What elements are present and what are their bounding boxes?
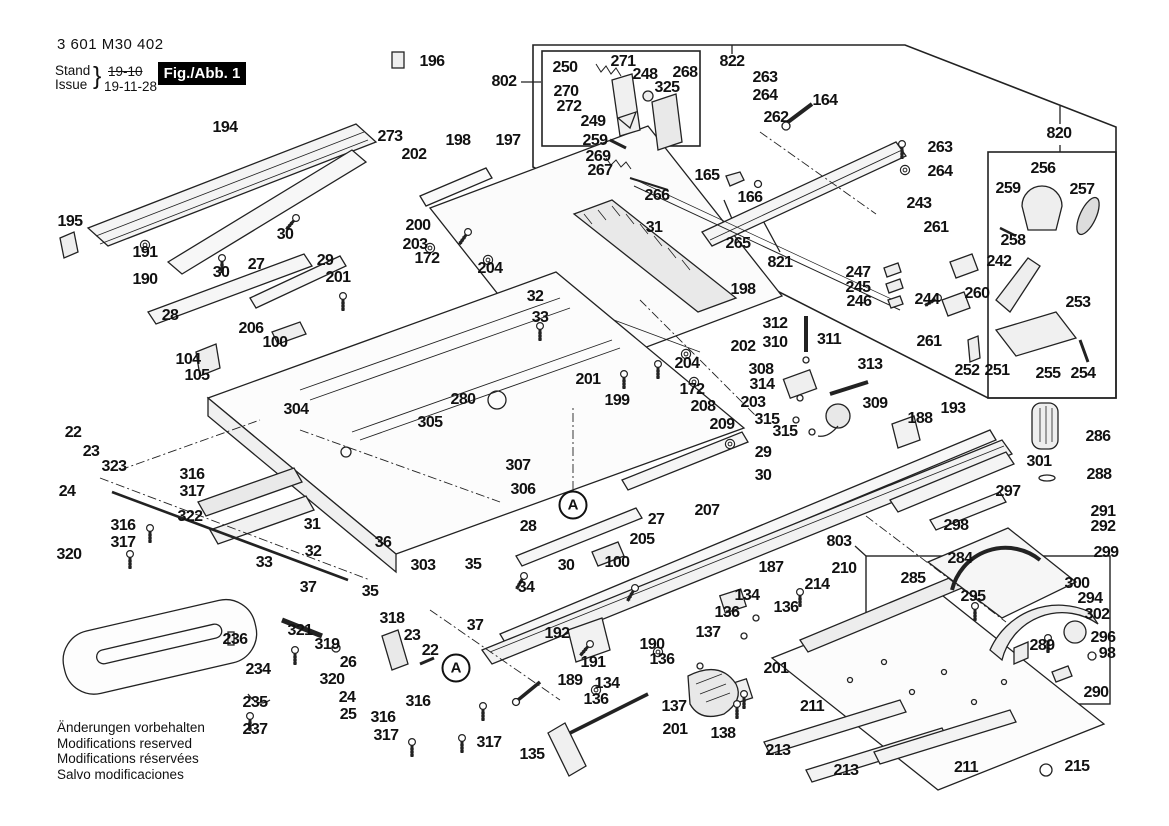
part-label-198: 198 xyxy=(731,282,756,298)
part-label-255: 255 xyxy=(1036,366,1061,382)
part-label-265: 265 xyxy=(726,236,751,252)
part-label-822: 822 xyxy=(720,54,745,70)
part-label-202: 202 xyxy=(402,147,427,163)
part-label-202: 202 xyxy=(731,339,756,355)
part-label-802: 802 xyxy=(492,74,517,90)
exploded-parts-diagram: 3 601 M30 402 Stand Issue } 19-10 19-11-… xyxy=(0,0,1169,826)
part-label-29: 29 xyxy=(755,445,772,461)
part-label-203: 203 xyxy=(741,395,766,411)
part-label-23: 23 xyxy=(83,444,100,460)
part-label-197: 197 xyxy=(496,133,521,149)
part-label-105: 105 xyxy=(185,368,210,384)
part-label-100: 100 xyxy=(263,335,288,351)
part-label-136: 136 xyxy=(650,652,675,668)
part-label-187: 187 xyxy=(759,560,784,576)
part-label-33: 33 xyxy=(532,310,549,326)
part-label-35: 35 xyxy=(465,557,482,573)
part-label-135: 135 xyxy=(520,747,545,763)
part-label-210: 210 xyxy=(832,561,857,577)
part-label-264: 264 xyxy=(753,88,778,104)
part-label-188: 188 xyxy=(908,411,933,427)
part-label-316: 316 xyxy=(406,694,431,710)
part-label-263: 263 xyxy=(928,140,953,156)
part-label-272: 272 xyxy=(557,99,582,115)
part-label-314: 314 xyxy=(750,377,775,393)
part-label-211: 211 xyxy=(954,760,978,776)
part-label-257: 257 xyxy=(1070,182,1095,198)
part-label-263: 263 xyxy=(753,70,778,86)
part-label-30: 30 xyxy=(755,468,772,484)
part-label-309: 309 xyxy=(863,396,888,412)
part-label-317: 317 xyxy=(180,484,205,500)
part-label-317: 317 xyxy=(111,535,136,551)
part-label-209: 209 xyxy=(710,417,735,433)
figure-label-badge: Fig./Abb. 1 xyxy=(158,62,246,85)
part-label-318: 318 xyxy=(380,611,405,627)
part-label-289: 289 xyxy=(1030,638,1055,654)
part-label-307: 307 xyxy=(506,458,531,474)
part-label-104: 104 xyxy=(176,352,201,368)
part-label-266: 266 xyxy=(645,188,670,204)
part-label-317: 317 xyxy=(477,735,502,751)
part-label-30: 30 xyxy=(277,227,294,243)
part-label-284: 284 xyxy=(948,551,973,567)
part-label-298: 298 xyxy=(944,518,969,534)
view-callout-a: A xyxy=(559,491,588,520)
part-label-244: 244 xyxy=(915,292,940,308)
part-label-321: 321 xyxy=(288,623,313,639)
part-label-260: 260 xyxy=(965,286,990,302)
part-label-36: 36 xyxy=(375,535,392,551)
part-label-191: 191 xyxy=(581,655,606,671)
issue-value: 19-11-28 xyxy=(104,79,157,94)
part-label-214: 214 xyxy=(805,577,830,593)
part-label-206: 206 xyxy=(239,321,264,337)
part-label-301: 301 xyxy=(1027,454,1052,470)
part-label-295: 295 xyxy=(961,589,986,605)
part-label-261: 261 xyxy=(924,220,949,236)
part-label-199: 199 xyxy=(605,393,630,409)
part-label-264: 264 xyxy=(928,164,953,180)
part-label-137: 137 xyxy=(696,625,721,641)
part-label-37: 37 xyxy=(467,618,484,634)
part-label-27: 27 xyxy=(248,257,265,273)
part-label-259: 259 xyxy=(996,181,1021,197)
part-label-246: 246 xyxy=(847,294,872,310)
part-label-285: 285 xyxy=(901,571,926,587)
view-callout-a: A xyxy=(442,654,471,683)
part-label-258: 258 xyxy=(1001,233,1026,249)
part-label-194: 194 xyxy=(213,120,238,136)
part-label-292: 292 xyxy=(1091,519,1116,535)
part-label-315: 315 xyxy=(773,424,798,440)
part-label-136: 136 xyxy=(774,600,799,616)
part-label-261: 261 xyxy=(917,334,942,350)
part-label-306: 306 xyxy=(511,482,536,498)
part-label-250: 250 xyxy=(553,60,578,76)
part-label-196: 196 xyxy=(420,54,445,70)
part-label-28: 28 xyxy=(162,308,179,324)
part-label-235: 235 xyxy=(243,695,268,711)
part-label-267: 267 xyxy=(588,163,613,179)
part-label-325: 325 xyxy=(655,80,680,96)
part-label-288: 288 xyxy=(1087,467,1112,483)
part-label-294: 294 xyxy=(1078,591,1103,607)
part-label-208: 208 xyxy=(691,399,716,415)
part-label-252: 252 xyxy=(955,363,980,379)
part-label-27: 27 xyxy=(648,512,665,528)
part-label-165: 165 xyxy=(695,168,720,184)
part-label-316: 316 xyxy=(371,710,396,726)
part-label-320: 320 xyxy=(320,672,345,688)
part-label-273: 273 xyxy=(378,129,403,145)
part-label-286: 286 xyxy=(1086,429,1111,445)
part-label-204: 204 xyxy=(675,356,700,372)
part-label-204: 204 xyxy=(478,261,503,277)
part-label-134: 134 xyxy=(735,588,760,604)
part-label-262: 262 xyxy=(764,110,789,126)
part-label-100: 100 xyxy=(605,555,630,571)
part-label-280: 280 xyxy=(451,392,476,408)
reservation-notice-line: Modifications réservées xyxy=(57,751,205,767)
part-label-304: 304 xyxy=(284,402,309,418)
part-label-201: 201 xyxy=(576,372,601,388)
part-label-322: 322 xyxy=(178,509,203,525)
part-label-310: 310 xyxy=(763,335,788,351)
part-label-254: 254 xyxy=(1071,366,1096,382)
part-label-821: 821 xyxy=(768,255,793,271)
part-label-316: 316 xyxy=(111,518,136,534)
part-label-305: 305 xyxy=(418,415,443,431)
part-label-207: 207 xyxy=(695,503,720,519)
part-label-213: 213 xyxy=(834,763,859,779)
part-label-200: 200 xyxy=(406,218,431,234)
part-label-320: 320 xyxy=(57,547,82,563)
part-label-237: 237 xyxy=(243,722,268,738)
reservation-notice-line: Salvo modificaciones xyxy=(57,767,205,783)
part-label-138: 138 xyxy=(711,726,736,742)
part-label-251: 251 xyxy=(985,363,1010,379)
part-label-302: 302 xyxy=(1085,607,1110,623)
reservation-notice-line: Modifications reserved xyxy=(57,736,205,752)
part-label-316: 316 xyxy=(180,467,205,483)
part-label-205: 205 xyxy=(630,532,655,548)
part-label-34: 34 xyxy=(518,580,535,596)
stand-label: Stand xyxy=(55,64,90,78)
part-label-211: 211 xyxy=(800,699,824,715)
part-label-24: 24 xyxy=(59,484,76,500)
part-label-31: 31 xyxy=(646,220,663,236)
part-label-136: 136 xyxy=(584,692,609,708)
part-label-192: 192 xyxy=(545,626,570,642)
stand-value-struck: 19-10 xyxy=(108,64,143,79)
part-label-32: 32 xyxy=(305,544,322,560)
part-label-201: 201 xyxy=(764,661,789,677)
part-label-28: 28 xyxy=(520,519,537,535)
part-label-323: 323 xyxy=(102,459,127,475)
part-label-259: 259 xyxy=(583,133,608,149)
part-label-189: 189 xyxy=(558,673,583,689)
part-label-312: 312 xyxy=(763,316,788,332)
issue-label: Issue xyxy=(55,78,90,92)
part-label-30: 30 xyxy=(558,558,575,574)
part-label-803: 803 xyxy=(827,534,852,550)
part-label-242: 242 xyxy=(987,254,1012,270)
part-label-172: 172 xyxy=(415,251,440,267)
part-label-137: 137 xyxy=(662,699,687,715)
stand-issue-brace: } xyxy=(93,62,101,91)
part-label-31: 31 xyxy=(304,517,321,533)
part-label-191: 191 xyxy=(133,245,158,261)
part-label-136: 136 xyxy=(715,605,740,621)
part-label-299: 299 xyxy=(1094,545,1119,561)
part-label-23: 23 xyxy=(404,628,421,644)
part-label-98: 98 xyxy=(1099,646,1116,662)
part-label-290: 290 xyxy=(1084,685,1109,701)
part-label-22: 22 xyxy=(65,425,82,441)
part-label-297: 297 xyxy=(996,484,1021,500)
part-label-234: 234 xyxy=(246,662,271,678)
part-label-215: 215 xyxy=(1065,759,1090,775)
part-label-820: 820 xyxy=(1047,126,1072,142)
part-label-198: 198 xyxy=(446,133,471,149)
part-label-201: 201 xyxy=(326,270,351,286)
part-label-33: 33 xyxy=(256,555,273,571)
document-part-number: 3 601 M30 402 xyxy=(57,36,164,53)
reservation-notice: Änderungen vorbehaltenModifications rese… xyxy=(57,720,205,782)
part-label-296: 296 xyxy=(1091,630,1116,646)
part-label-300: 300 xyxy=(1065,576,1090,592)
part-label-317: 317 xyxy=(374,728,399,744)
part-label-249: 249 xyxy=(581,114,606,130)
part-label-313: 313 xyxy=(858,357,883,373)
part-label-35: 35 xyxy=(362,584,379,600)
part-label-37: 37 xyxy=(300,580,317,596)
part-label-166: 166 xyxy=(738,190,763,206)
part-label-193: 193 xyxy=(941,401,966,417)
part-label-303: 303 xyxy=(411,558,436,574)
part-label-29: 29 xyxy=(317,253,334,269)
part-label-172: 172 xyxy=(680,382,705,398)
part-label-195: 195 xyxy=(58,214,83,230)
part-label-30: 30 xyxy=(213,265,230,281)
reservation-notice-line: Änderungen vorbehalten xyxy=(57,720,205,736)
part-label-253: 253 xyxy=(1066,295,1091,311)
part-label-256: 256 xyxy=(1031,161,1056,177)
part-label-243: 243 xyxy=(907,196,932,212)
part-label-213: 213 xyxy=(766,743,791,759)
part-label-201: 201 xyxy=(663,722,688,738)
part-label-190: 190 xyxy=(133,272,158,288)
part-label-319: 319 xyxy=(315,637,340,653)
part-label-22: 22 xyxy=(422,643,439,659)
part-label-164: 164 xyxy=(813,93,838,109)
part-label-26: 26 xyxy=(340,655,357,671)
stand-issue-labels: Stand Issue xyxy=(55,64,90,92)
part-label-24: 24 xyxy=(339,690,356,706)
part-label-25: 25 xyxy=(340,707,357,723)
part-label-32: 32 xyxy=(527,289,544,305)
part-label-134: 134 xyxy=(595,676,620,692)
part-label-311: 311 xyxy=(817,332,841,348)
part-label-236: 236 xyxy=(223,632,248,648)
